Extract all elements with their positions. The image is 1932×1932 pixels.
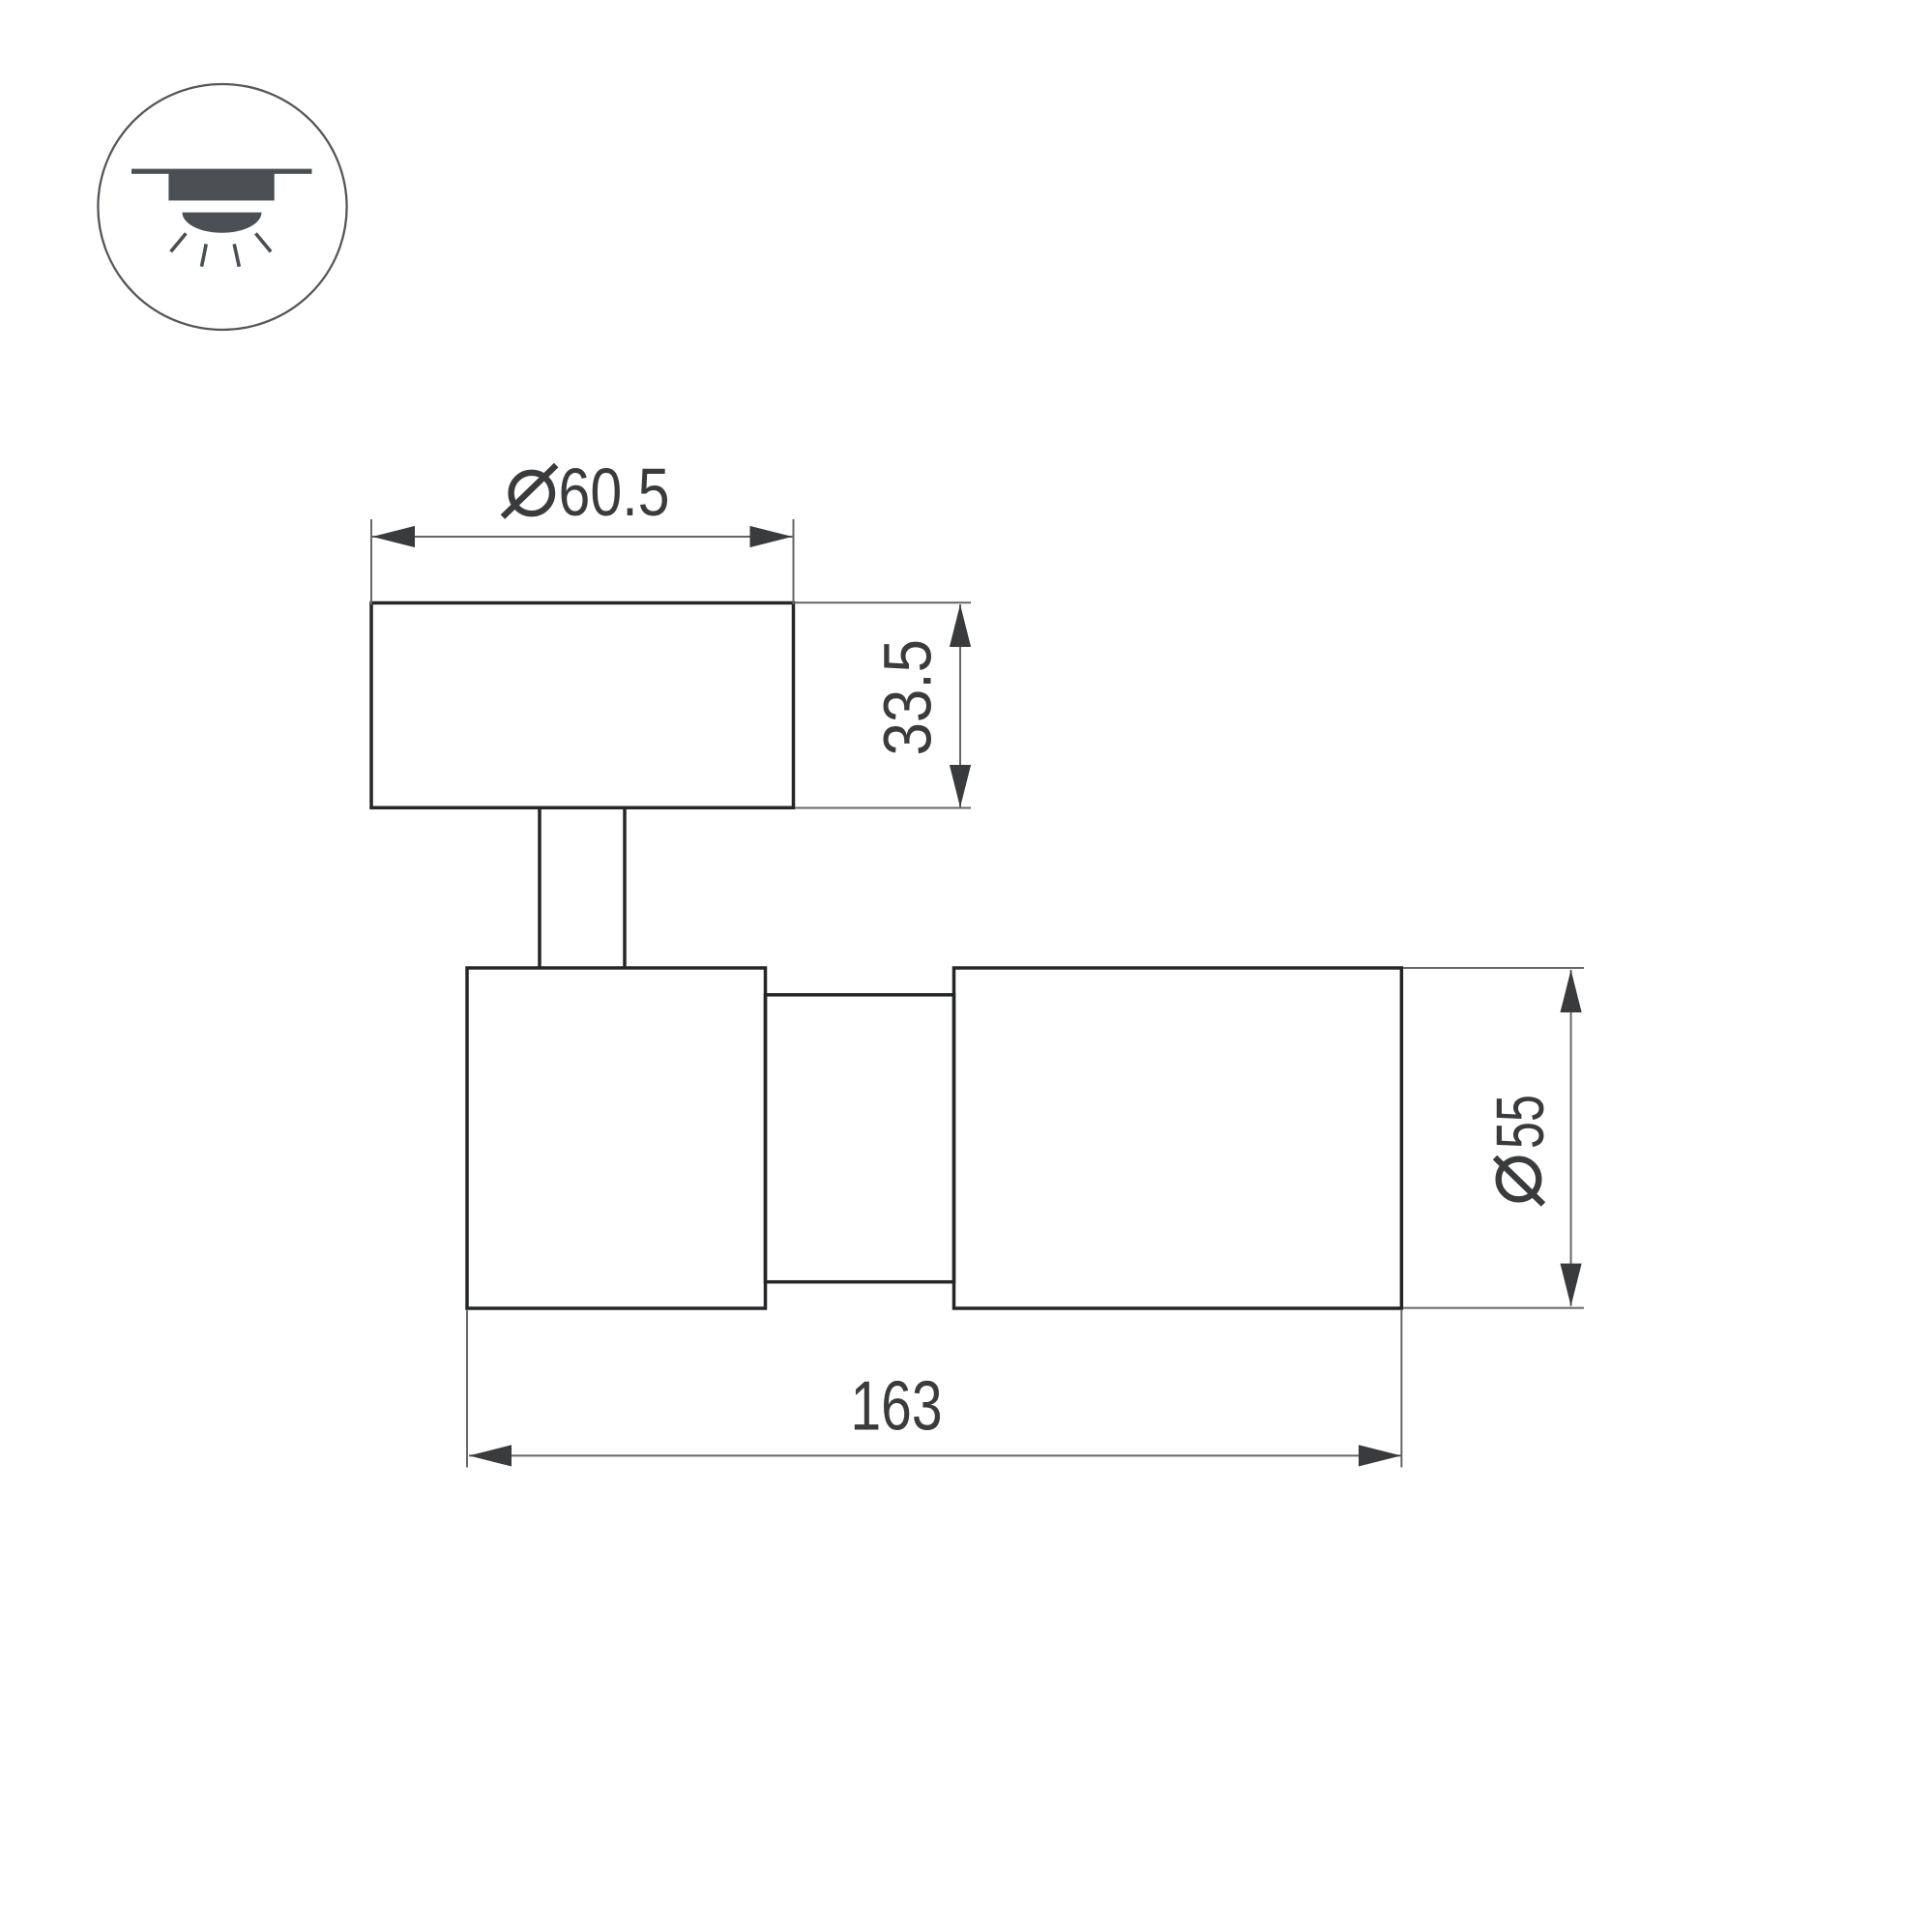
svg-text:60.5: 60.5 [559, 454, 670, 530]
svg-text:55: 55 [1482, 1095, 1558, 1149]
svg-text:33.5: 33.5 [870, 639, 946, 756]
svg-text:163: 163 [851, 1368, 943, 1446]
